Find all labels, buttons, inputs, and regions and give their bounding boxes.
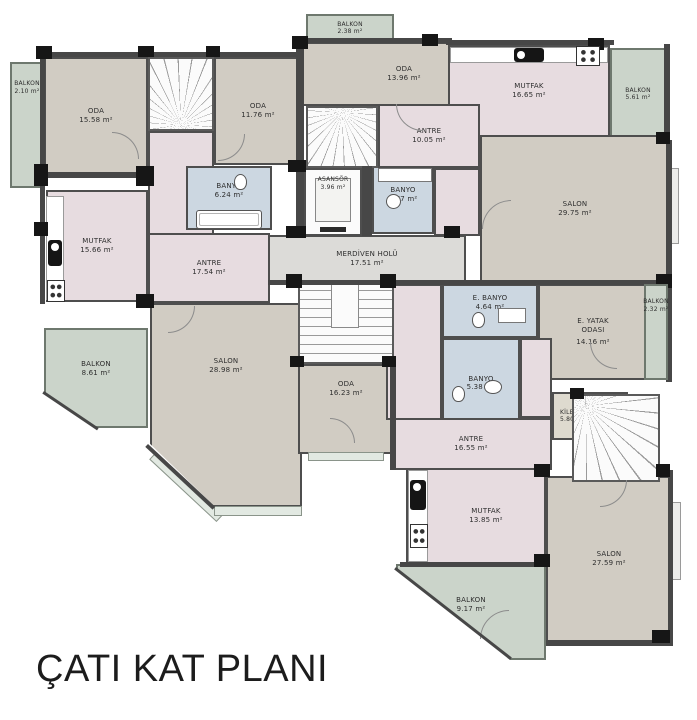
room-name: BALKON (625, 87, 651, 95)
wall (268, 280, 672, 285)
wall-column (656, 464, 670, 477)
wall (400, 562, 548, 567)
corridor-right (520, 338, 552, 418)
room-area: 17.51 m² (350, 259, 384, 268)
room-area: 27.59 m² (592, 559, 626, 568)
wall (362, 166, 372, 236)
wall-column (36, 46, 52, 59)
room-area: 15.66 m² (80, 246, 114, 255)
wall-column (136, 166, 154, 186)
room-antre-left: ANTRE 17.54 m² (148, 233, 270, 303)
wall-column (136, 294, 154, 308)
room-name: MERDİVEN HOLÜ (336, 250, 398, 259)
room-area: 2.10 m² (15, 88, 40, 96)
bay-window (214, 506, 302, 516)
room-area: 28.98 m² (209, 366, 243, 375)
room-balkon-bottom: BALKON 9.17 m² (396, 564, 546, 660)
plan-title: ÇATI KAT PLANI (36, 648, 328, 691)
staircase-central (298, 280, 394, 364)
wall (40, 52, 304, 57)
sink-icon (410, 480, 426, 510)
room-balkon-top-right: BALKON 5.61 m² (610, 48, 666, 140)
room-name: MUTFAK (82, 237, 111, 246)
toilet-icon (472, 312, 485, 328)
room-name: MUTFAK (514, 82, 543, 91)
bath-cabinet (378, 168, 432, 182)
room-name: BALKON (643, 298, 669, 306)
sink-icon (484, 380, 502, 394)
room-name: BALKON (81, 360, 111, 369)
room-name: SALON (214, 357, 239, 366)
wall-column (206, 46, 220, 57)
room-name: ANTRE (197, 259, 222, 268)
bathtub-icon (196, 210, 262, 229)
room-e-yatak-odasi: E. YATAK ODASI 14.16 m² (538, 284, 648, 380)
toilet-icon (234, 174, 247, 190)
wall (296, 42, 304, 238)
wall-column (286, 226, 306, 238)
wall-column (292, 36, 308, 49)
stove-icon (576, 46, 600, 66)
window-strip (672, 502, 681, 580)
wall-column (34, 222, 48, 236)
wall-column (286, 274, 302, 288)
room-area: 13.85 m² (469, 516, 503, 525)
room-name: E. YATAK ODASI (565, 317, 621, 335)
room-area: 3.96 m² (321, 184, 346, 192)
room-area: 16.23 m² (329, 389, 363, 398)
wall-column (656, 132, 670, 144)
room-area: 10.05 m² (412, 136, 446, 145)
room-oda-top-center: ODA 13.96 m² (302, 42, 450, 106)
room-banyo-bottom: BANYO 5.38 m² (442, 338, 520, 420)
room-area: 16.55 m² (454, 444, 488, 453)
sink-icon (514, 48, 544, 62)
room-area: 2.32 m² (644, 306, 669, 314)
wall (666, 140, 672, 286)
wall-column (34, 164, 48, 186)
room-area: 15.58 m² (79, 116, 113, 125)
wall (668, 470, 673, 646)
room-name: BALKON (14, 80, 40, 88)
room-name: SALON (563, 200, 588, 209)
wall (664, 44, 670, 142)
wall-column (382, 356, 396, 367)
wall-column (652, 630, 670, 643)
wall-column (290, 356, 304, 367)
room-area: 6.24 m² (215, 191, 244, 200)
room-area: 16.65 m² (512, 91, 546, 100)
room-name: ANTRE (459, 435, 484, 444)
room-name: ODA (88, 107, 104, 116)
room-name: BALKON (456, 596, 486, 605)
room-name: ODA (338, 380, 354, 389)
wall-column (534, 464, 550, 477)
sink-icon (386, 194, 401, 209)
room-balkon-left: BALKON 8.61 m² (44, 328, 148, 428)
staircase-top-center (306, 106, 378, 168)
room-name: MUTFAK (471, 507, 500, 516)
wall-column (570, 388, 584, 399)
elevator: ASANSÖR 3.96 m² (304, 168, 362, 236)
room-name: SALON (597, 550, 622, 559)
room-area: 5.61 m² (626, 94, 651, 102)
room-name: ODA (250, 102, 266, 111)
wall-column (444, 226, 460, 238)
wall-column (422, 34, 438, 46)
room-name: E. BANYO (473, 294, 508, 303)
room-area: 9.17 m² (457, 605, 486, 614)
room-name: BALKON (337, 21, 363, 29)
room-name: ASANSÖR (318, 176, 349, 184)
staircase-bottom-right (572, 394, 660, 482)
sink-icon (48, 240, 62, 266)
room-balkon-right: BALKON 2.32 m² (644, 284, 668, 380)
wall-column (534, 554, 550, 567)
room-area: 13.96 m² (387, 74, 421, 83)
floor-plan: BALKON 2.10 m² BALKON 2.38 m² BALKON 5.6… (0, 0, 697, 720)
wall-column (138, 46, 154, 57)
stove-icon (410, 524, 428, 548)
room-area: 11.76 m² (241, 111, 275, 120)
room-name: ODA (396, 65, 412, 74)
stove-icon (47, 280, 65, 302)
wall-column (288, 160, 306, 172)
room-area: 2.38 m² (338, 28, 363, 36)
staircase-top-left (148, 57, 214, 131)
room-antre-top: ANTRE 10.05 m² (378, 104, 480, 168)
wall-column (380, 274, 396, 288)
room-antre-bottom: ANTRE 16.55 m² (390, 418, 552, 470)
wall (390, 362, 396, 470)
wall (44, 172, 150, 178)
stair-well (331, 282, 359, 328)
bay-window (308, 452, 384, 461)
room-area: 29.75 m² (558, 209, 592, 218)
bath-cabinet (498, 308, 526, 323)
room-area: 17.54 m² (192, 268, 226, 277)
room-area: 8.61 m² (82, 369, 111, 378)
toilet-icon (452, 386, 465, 402)
